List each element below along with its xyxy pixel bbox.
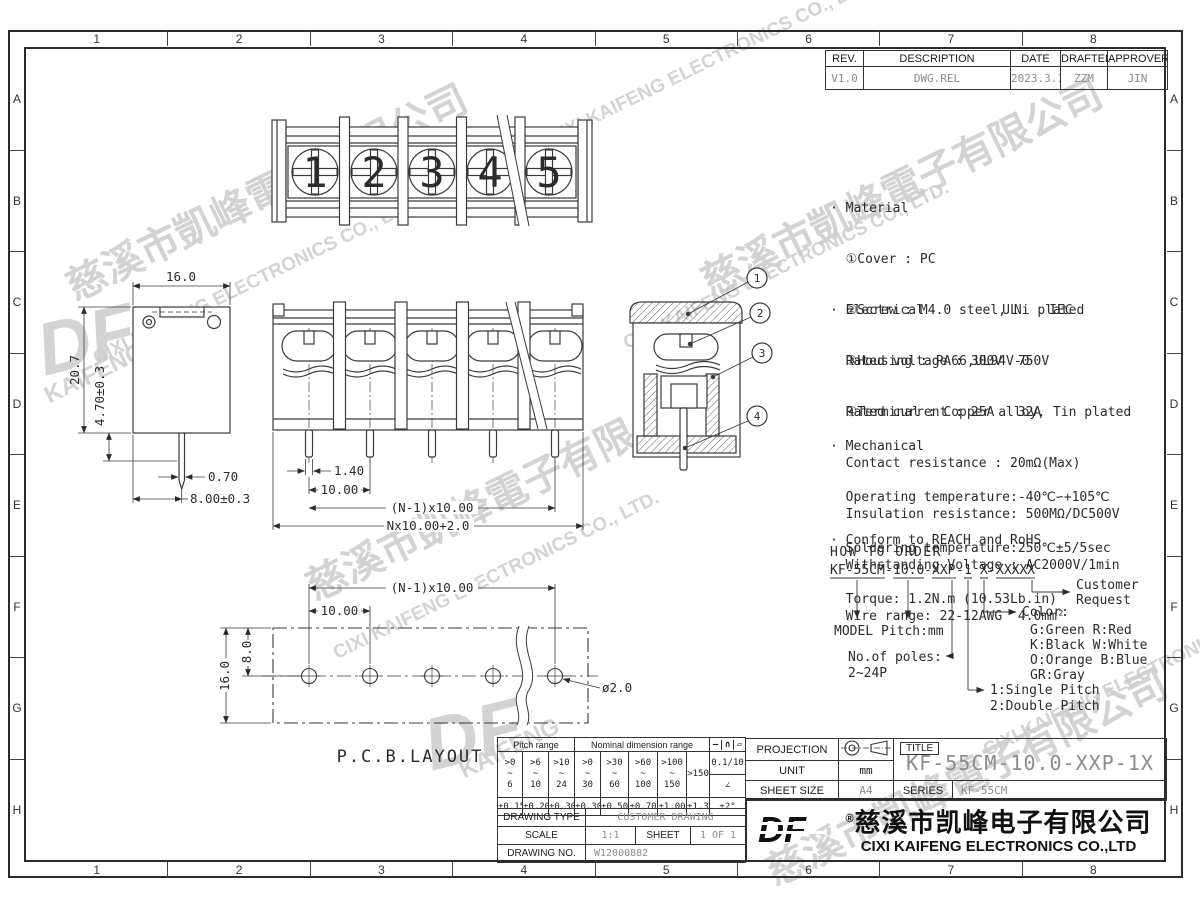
zone-label: 1: [26, 31, 167, 46]
zone-label: 5: [595, 31, 737, 46]
zone-label: D: [1167, 353, 1181, 455]
conform-spec: · Conform to REACH and RoHS: [830, 498, 1041, 583]
spec-line: · Material: [830, 200, 1131, 217]
drawing-info-table: DRAWING TYPE CUSTOMER DRAWING SCALE 1:1 …: [497, 808, 746, 863]
range-cell: >6 ~ 10: [523, 752, 549, 798]
zone-label: B: [10, 150, 24, 252]
spec-line: · Electrical UL IEC: [830, 302, 1120, 319]
company-name: ®慈溪市凯峰电子有限公司 CIXI KAIFENG ELECTRONICS CO…: [833, 804, 1164, 856]
flatness-symbol: ∩: [721, 740, 733, 750]
zone-label: D: [10, 353, 24, 455]
pitch-range-header: Pitch range: [498, 738, 575, 752]
spec-line: · Conform to REACH and RoHS: [830, 532, 1041, 549]
revision-table: REV. DESCRIPTION DATE DRAFTER APPROVER V…: [825, 50, 1168, 90]
unit-label: UNIT: [746, 761, 839, 781]
zone-label: E: [1167, 454, 1181, 556]
date-value: 2023.3.17: [1011, 67, 1061, 90]
kaifeng-logo-icon: DF: [754, 808, 826, 852]
zone-columns-top: 1 2 3 4 5 6 7 8: [26, 31, 1164, 46]
zone-rows-right: A B C D E F G H: [1167, 49, 1181, 860]
logo-letters: DF: [758, 809, 807, 850]
parallelism-symbol: ▱: [733, 740, 745, 750]
rev-value: V1.0: [826, 67, 864, 90]
zone-label: 5: [595, 862, 737, 877]
zone-label: A: [1167, 49, 1181, 150]
straightness-symbol: —: [710, 740, 721, 750]
zone-label: 2: [167, 31, 309, 46]
scale-value: 1:1: [586, 827, 636, 845]
drawing-type-label: DRAWING TYPE: [498, 809, 586, 827]
zone-label: F: [10, 556, 24, 658]
range-cell: >10 ~ 24: [549, 752, 575, 798]
drafter-header: DRAFTER: [1061, 51, 1108, 67]
zone-label: B: [1167, 150, 1181, 252]
range-cell: >0 ~ 30: [575, 752, 601, 798]
zone-label: C: [10, 251, 24, 353]
rev-header: REV.: [826, 51, 864, 67]
tolerance-table: Pitch range Nominal dimension range — ∩ …: [497, 737, 746, 816]
range-cell: >150: [687, 752, 710, 798]
projection-label: PROJECTION: [746, 739, 839, 761]
zone-label: G: [1167, 657, 1181, 759]
scale-label: SCALE: [498, 827, 586, 845]
approver-value: JIN: [1108, 67, 1168, 90]
geometry-symbols-header: — ∩ ▱: [710, 738, 746, 752]
drawing-type-value: CUSTOMER DRAWING: [586, 809, 746, 827]
zone-columns-bottom: 1 2 3 4 5 6 7 8: [26, 862, 1164, 877]
zone-label: 3: [310, 862, 452, 877]
range-row: >0 ~ 6 >6 ~ 10 >10 ~ 24 >0 ~ 30 >30 ~ 60…: [498, 752, 746, 798]
spec-line: Torque: 1.2N.m (10.53Lb.in): [830, 591, 1111, 608]
zone-label: 4: [452, 862, 594, 877]
zone-label: 1: [26, 862, 167, 877]
zone-label: C: [1167, 251, 1181, 353]
zone-label: G: [10, 657, 24, 759]
drawing-no-value: W12000882: [586, 845, 746, 863]
range-cell: >60 ~ 100: [629, 752, 658, 798]
company-logo: DF: [747, 808, 833, 852]
zone-label: F: [1167, 556, 1181, 658]
flatness-value: 0.1/10: [710, 752, 745, 774]
zone-label: H: [10, 759, 24, 861]
zone-label: 7: [879, 31, 1021, 46]
date-header: DATE: [1011, 51, 1061, 67]
flatness-angle-cell: 0.1/10 ∠: [710, 752, 746, 798]
zone-rows-left: A B C D E F G H: [10, 49, 24, 860]
zone-label: H: [1167, 759, 1181, 861]
description-value: DWG.REL: [864, 67, 1011, 90]
nominal-range-header: Nominal dimension range: [575, 738, 710, 752]
registered-mark: ®: [845, 813, 854, 825]
zone-label: 2: [167, 862, 309, 877]
range-cell: >0 ~ 6: [498, 752, 523, 798]
drawing-no-label: DRAWING NO.: [498, 845, 586, 863]
spec-line: ①Cover : PC: [830, 251, 1131, 268]
company-block: DF ®慈溪市凯峰电子有限公司 CIXI KAIFENG ELECTRONICS…: [745, 798, 1166, 862]
zone-label: A: [10, 49, 24, 150]
title-cell: TITLE KF-55CM-10.0-XXP-1X: [894, 739, 1167, 781]
description-header: DESCRIPTION: [864, 51, 1011, 67]
zone-label: 8: [1022, 31, 1164, 46]
range-cell: >100 ~ 150: [658, 752, 687, 798]
first-angle-projection-icon: [840, 739, 892, 757]
projection-symbol: [839, 739, 894, 761]
range-cell: >30 ~ 60: [601, 752, 629, 798]
spec-line: · Mechanical: [830, 438, 1111, 455]
zone-label: E: [10, 454, 24, 556]
unit-value: mm: [839, 761, 894, 781]
zone-label: 4: [452, 31, 594, 46]
sheet-value: 1 OF 1: [691, 827, 746, 845]
zone-label: 8: [1022, 862, 1164, 877]
approver-header: APPROVER: [1108, 51, 1168, 67]
drafter-value: ZZM: [1061, 67, 1108, 90]
title-label: TITLE: [900, 742, 939, 755]
company-name-en: CIXI KAIFENG ELECTRONICS CO.,LTD: [833, 838, 1164, 856]
zone-label: 6: [737, 862, 879, 877]
spec-line: Rated voltage : 300V 750V: [830, 353, 1120, 370]
zone-label: 3: [310, 31, 452, 46]
zone-label: 7: [879, 862, 1021, 877]
drawing-sheet: 慈溪市凱峰電子有限公司 CIXI KAIFENG ELECTRONICS CO.…: [0, 0, 1200, 910]
sheet-label: SHEET: [636, 827, 691, 845]
angle-symbol: ∠: [710, 774, 745, 797]
revision-row: V1.0 DWG.REL 2023.3.17 ZZM JIN: [826, 67, 1168, 90]
company-name-cn: 慈溪市凯峰电子有限公司: [855, 808, 1152, 838]
zone-label: 6: [737, 31, 879, 46]
title-block: PROJECTION TITLE KF-55CM-10.0-XXP-1X UNI…: [745, 738, 1167, 801]
